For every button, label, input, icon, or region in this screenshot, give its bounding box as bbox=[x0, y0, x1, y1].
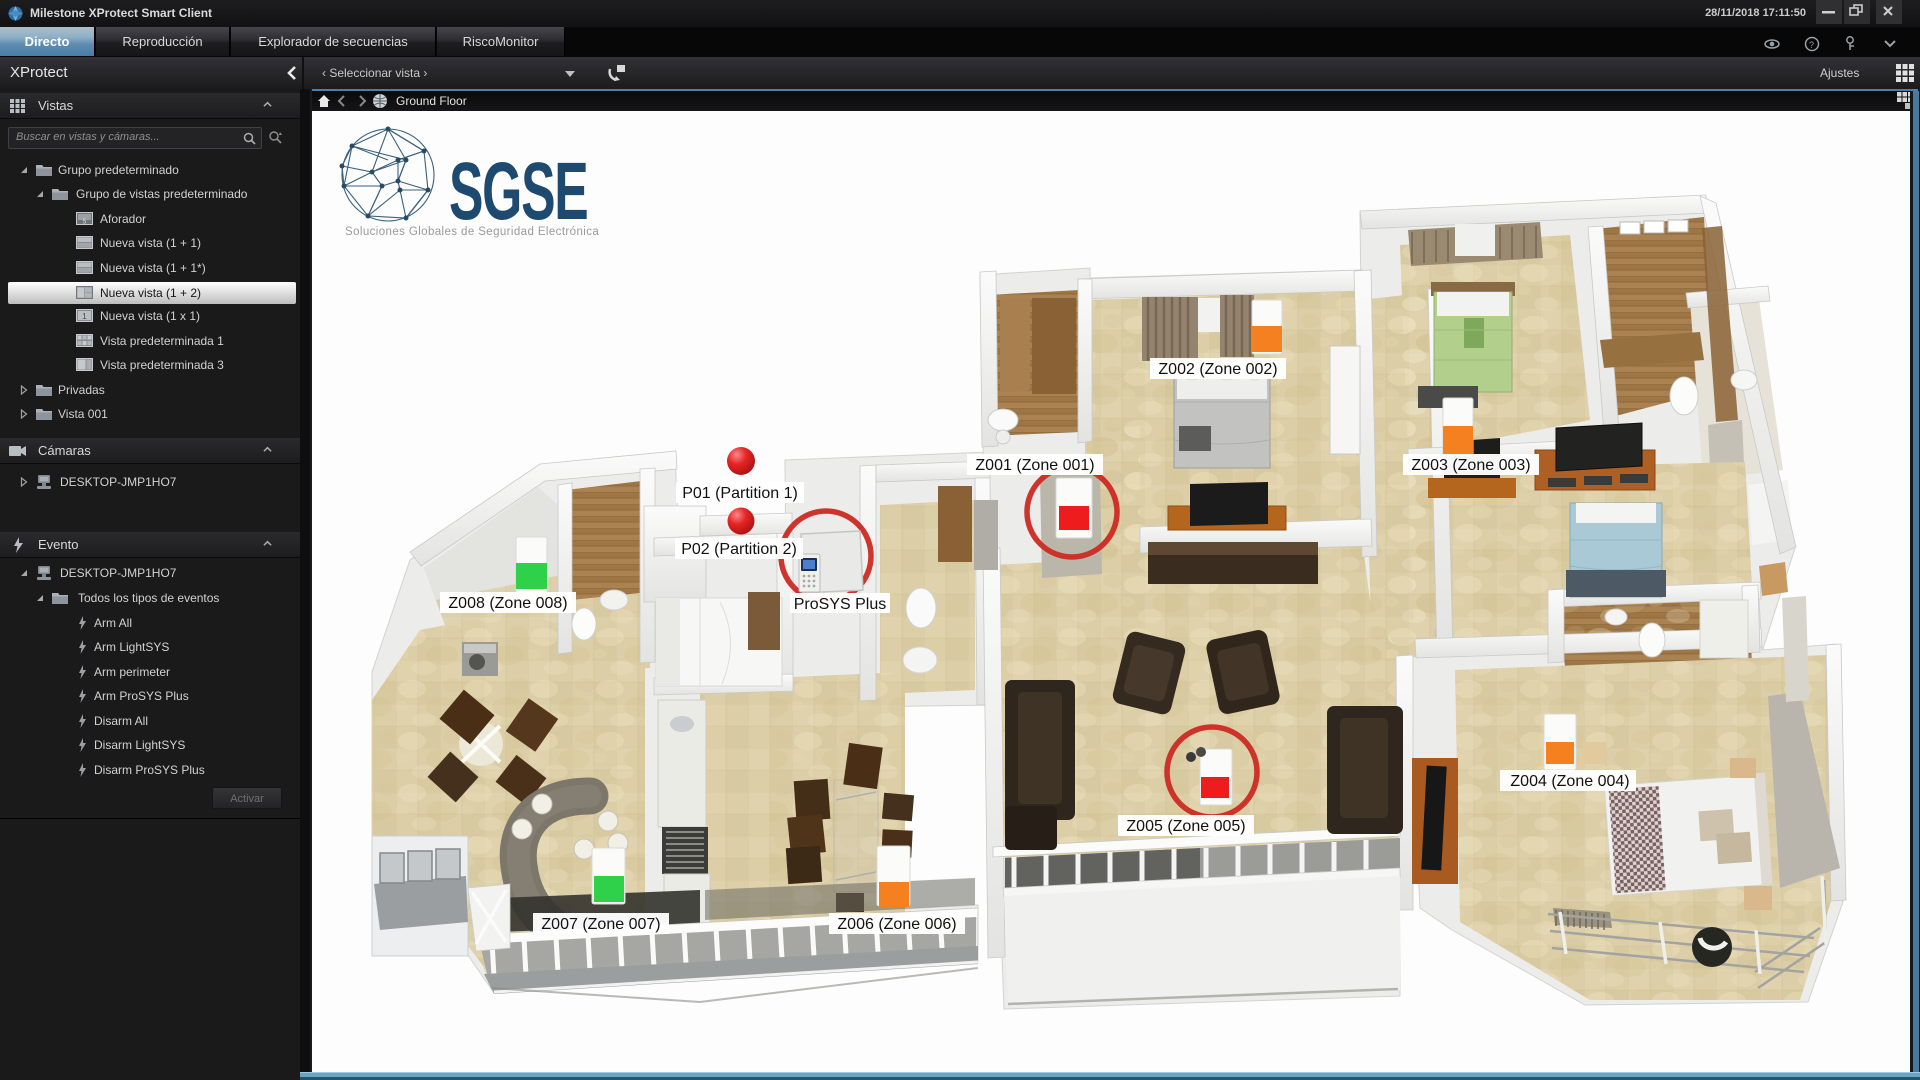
svg-text:Z002 (Zone 002): Z002 (Zone 002) bbox=[1158, 361, 1277, 378]
svg-text:Soluciones Globales de Segurid: Soluciones Globales de Seguridad Electró… bbox=[345, 226, 599, 238]
svg-text:Z004 (Zone 004): Z004 (Zone 004) bbox=[1510, 773, 1629, 790]
svg-text:Z007 (Zone 007): Z007 (Zone 007) bbox=[541, 916, 660, 933]
svg-text:?: ? bbox=[1809, 40, 1814, 50]
svg-text:Z006 (Zone 006): Z006 (Zone 006) bbox=[837, 916, 956, 933]
svg-text:5: 5 bbox=[83, 219, 87, 226]
svg-text:P01 (Partition 1): P01 (Partition 1) bbox=[682, 485, 798, 502]
svg-text:P02 (Partition 2): P02 (Partition 2) bbox=[681, 541, 797, 558]
svg-text:Z008 (Zone 008): Z008 (Zone 008) bbox=[448, 595, 567, 612]
svg-text:SGSE: SGSE bbox=[449, 145, 587, 237]
svg-text:Z003 (Zone 003): Z003 (Zone 003) bbox=[1411, 457, 1530, 474]
svg-text:Z005 (Zone 005): Z005 (Zone 005) bbox=[1126, 818, 1245, 835]
svg-text:ProSYS Plus: ProSYS Plus bbox=[794, 596, 886, 613]
svg-text:1: 1 bbox=[82, 312, 87, 321]
svg-text:Z001 (Zone 001): Z001 (Zone 001) bbox=[975, 457, 1094, 474]
